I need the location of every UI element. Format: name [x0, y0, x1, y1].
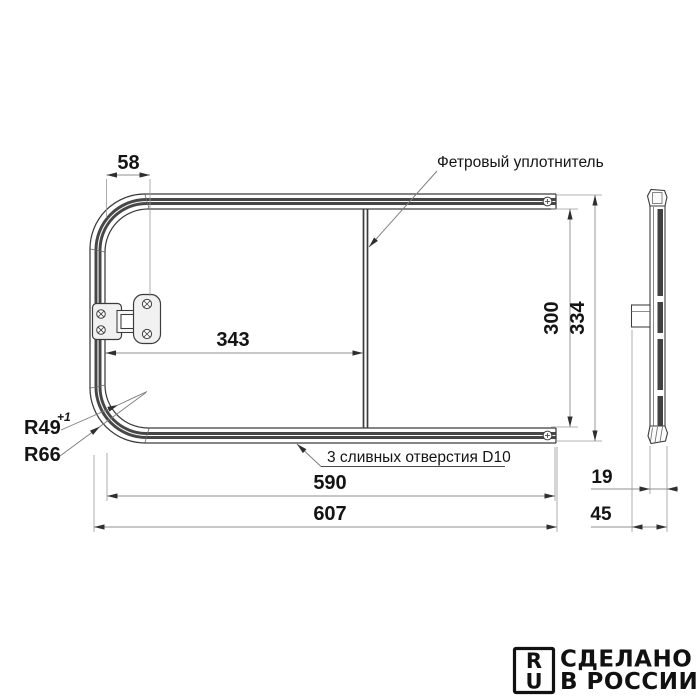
radius-r49-label: R49 [24, 417, 61, 439]
dimension-value-300: 300 [541, 301, 563, 334]
dimension-58: 58 [107, 152, 151, 296]
side-view [632, 190, 668, 444]
made-in-russia-logo: R U СДЕЛАНО В РОССИИ [515, 647, 699, 696]
dimension-value-607: 607 [313, 503, 346, 525]
leader-line [297, 444, 321, 467]
frame-inner-contour [105, 209, 556, 428]
logo-letter-u: U [525, 670, 542, 694]
drawing-canvas: 58 343 300 334 590 607 19 [0, 0, 700, 700]
dimension-value-590: 590 [313, 472, 346, 494]
technical-drawing: 58 343 300 334 590 607 19 [0, 0, 700, 700]
dimension-value-19: 19 [591, 467, 612, 488]
side-hinge-tab [632, 305, 651, 327]
dimension-value-45: 45 [590, 504, 612, 525]
dimension-value-343: 343 [216, 329, 249, 351]
dimension-value-58: 58 [117, 152, 139, 174]
drain-holes-callout: 3 сливных отверстия D10 [297, 444, 511, 467]
side-seal-strip-gap [657, 296, 663, 302]
radius-r66-label: R66 [24, 444, 61, 466]
frame-seal-band [98, 202, 556, 436]
radius-r49-tolerance: +1 [57, 410, 71, 424]
felt-seal-label: Фетровый уплотнитель [437, 154, 604, 171]
logo-line2: В РОССИИ [560, 669, 698, 695]
drain-holes-label: 3 сливных отверстия D10 [327, 449, 511, 466]
frame-seal-band-highlight [98, 202, 556, 436]
side-seal-strip-gap [657, 333, 663, 339]
felt-seal-divider [364, 209, 368, 428]
leader-line [60, 427, 100, 457]
side-seal-strip-gap [657, 390, 663, 396]
dimension-value-334: 334 [567, 300, 589, 334]
hinge [93, 295, 161, 344]
